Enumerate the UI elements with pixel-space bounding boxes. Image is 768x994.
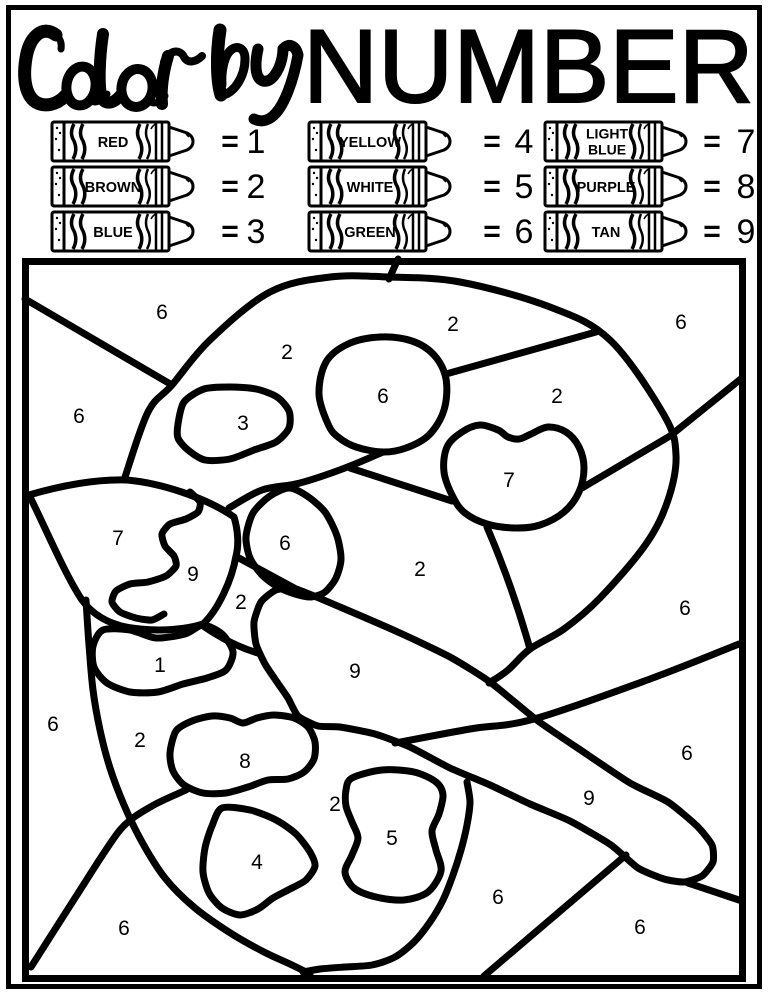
svg-text:NUMBER: NUMBER	[303, 9, 754, 125]
svg-text:1: 1	[247, 123, 266, 161]
svg-text:=: =	[703, 125, 721, 158]
svg-text:8: 8	[239, 750, 251, 773]
svg-text:5: 5	[515, 168, 534, 206]
svg-text:2: 2	[235, 591, 247, 614]
svg-text:3: 3	[247, 213, 266, 251]
svg-text:6: 6	[118, 917, 130, 940]
svg-text:=: =	[703, 170, 721, 203]
svg-text:RED: RED	[98, 135, 129, 151]
svg-text:BLUE: BLUE	[588, 142, 626, 158]
svg-text:=: =	[221, 125, 239, 158]
svg-text:2: 2	[414, 558, 426, 581]
svg-text:7: 7	[112, 527, 124, 550]
svg-text:9: 9	[349, 660, 361, 683]
svg-text:6: 6	[156, 301, 168, 324]
svg-text:=: =	[221, 170, 239, 203]
svg-text:1: 1	[154, 654, 166, 677]
svg-text:6: 6	[492, 886, 504, 909]
svg-text:9: 9	[187, 563, 199, 586]
svg-text:=: =	[221, 215, 239, 248]
svg-text:2: 2	[247, 168, 266, 206]
svg-text:2: 2	[329, 793, 341, 816]
svg-text:PURPLE: PURPLE	[577, 180, 636, 196]
svg-text:=: =	[483, 125, 501, 158]
svg-text:6: 6	[675, 311, 687, 334]
svg-text:3: 3	[237, 412, 249, 435]
svg-text:TAN: TAN	[592, 225, 621, 241]
svg-text:YELLOW: YELLOW	[339, 135, 401, 151]
svg-text:7: 7	[737, 123, 756, 161]
svg-text:=: =	[703, 215, 721, 248]
svg-text:=: =	[483, 215, 501, 248]
svg-text:6: 6	[377, 385, 389, 408]
svg-text:2: 2	[134, 729, 146, 752]
svg-text:2: 2	[281, 341, 293, 364]
svg-text:6: 6	[634, 916, 646, 939]
svg-text:6: 6	[279, 532, 291, 555]
svg-text:=: =	[483, 170, 501, 203]
svg-text:6: 6	[47, 713, 59, 736]
svg-text:LIGHT: LIGHT	[586, 126, 628, 142]
svg-text:7: 7	[503, 469, 515, 492]
svg-text:2: 2	[447, 313, 459, 336]
svg-text:9: 9	[583, 787, 595, 810]
svg-text:8: 8	[737, 168, 756, 206]
svg-text:5: 5	[386, 827, 398, 850]
svg-text:6: 6	[73, 405, 85, 428]
svg-text:4: 4	[515, 123, 534, 161]
svg-text:2: 2	[551, 385, 563, 408]
svg-text:BROWN: BROWN	[85, 180, 141, 196]
svg-text:BLUE: BLUE	[93, 225, 133, 241]
svg-text:9: 9	[737, 213, 756, 251]
svg-text:GREEN: GREEN	[344, 225, 396, 241]
svg-text:6: 6	[681, 742, 693, 765]
svg-text:6: 6	[679, 597, 691, 620]
svg-text:4: 4	[251, 851, 263, 874]
svg-text:WHITE: WHITE	[347, 180, 394, 196]
svg-text:6: 6	[515, 213, 534, 251]
